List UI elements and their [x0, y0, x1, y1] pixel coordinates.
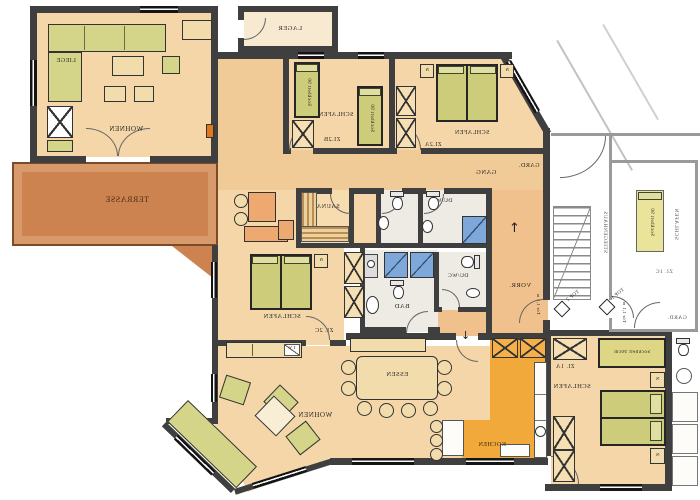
room-label-stiegenhaus: STIEGENHAUS — [599, 198, 607, 266]
wardrobe-icon — [553, 338, 587, 360]
sink — [676, 368, 692, 384]
wall — [211, 6, 218, 163]
door-note: Tür 1,1 m — [532, 284, 540, 324]
kitchen-sink — [535, 426, 546, 437]
bed-split — [602, 417, 664, 419]
sofa — [48, 24, 166, 52]
chair — [437, 381, 452, 396]
outer-wall — [150, 156, 218, 163]
bed-label: Sockbett 90 — [366, 93, 374, 143]
door-note: Tür 1,1 m — [618, 292, 626, 332]
wardrobe-icon — [553, 416, 575, 450]
chair — [379, 403, 394, 418]
cabinet — [182, 20, 212, 40]
counter-seam — [535, 394, 546, 395]
bed-label: Sockbett 90cm — [604, 350, 660, 355]
room-label-schlafen-1a: SCHLAFEN — [544, 384, 600, 391]
wardrobe-icon — [396, 86, 416, 116]
flow-arrow: ↓ — [461, 330, 470, 341]
room-floor-hall-alcove — [218, 58, 284, 152]
wardrobe-icon — [292, 120, 314, 148]
bench — [47, 140, 73, 152]
room-label-gang: GANG — [466, 170, 506, 177]
wardrobe-icon — [396, 118, 416, 148]
outer-wall — [30, 156, 86, 163]
door-arc — [560, 136, 606, 178]
bar-stool — [430, 434, 443, 447]
wardrobe-icon — [553, 450, 575, 482]
radiator — [206, 124, 214, 138]
window — [298, 52, 324, 59]
room-label-schlafen-2a: SCHLAFEN — [444, 130, 500, 136]
bed-split — [466, 66, 468, 120]
counter — [672, 424, 698, 454]
wall — [434, 252, 439, 312]
room-label-zi1c: ZI. 1C — [646, 270, 682, 276]
toilet-bowl — [461, 256, 474, 268]
coffee-table — [112, 56, 144, 76]
chair — [401, 403, 416, 418]
room-label-essen: ESSEN — [374, 372, 420, 379]
sideboard — [350, 338, 426, 352]
label-gard: GARD. — [512, 163, 546, 169]
label-gard-neighbor: GARD. — [660, 316, 694, 322]
chair — [423, 401, 438, 416]
toilet-bowl — [428, 197, 439, 210]
pillow — [470, 66, 496, 74]
nightstand-label: N — [421, 68, 433, 73]
wall — [444, 188, 492, 194]
pillow — [650, 394, 662, 414]
counter — [672, 392, 698, 422]
window — [600, 484, 642, 491]
bar-stool — [430, 448, 443, 461]
wall — [434, 307, 442, 312]
wardrobe-icon — [344, 252, 364, 284]
window — [466, 458, 514, 465]
sink — [422, 220, 433, 233]
table — [248, 192, 276, 222]
chair — [341, 360, 356, 375]
chair — [234, 212, 248, 226]
window — [211, 262, 217, 298]
shower — [410, 252, 434, 278]
room-label-wohnen-nw: WOHNEN — [96, 126, 156, 133]
counter — [672, 456, 698, 486]
wardrobe-icon — [344, 286, 364, 318]
toilet-tank — [474, 255, 480, 269]
room-label-kochen: KOCHEN — [470, 442, 514, 448]
outer-wall — [665, 330, 672, 491]
window — [211, 374, 217, 402]
counter-seam — [535, 420, 546, 421]
wall — [486, 248, 492, 336]
sink — [378, 216, 389, 230]
pillow — [284, 256, 310, 264]
bar-counter — [442, 420, 464, 456]
stairs-diagonal — [553, 206, 591, 300]
room-label-lager: LAGER — [268, 26, 312, 33]
wardrobe-icon — [520, 338, 546, 358]
wall — [418, 188, 423, 248]
armchair — [104, 86, 126, 102]
room-label-schlafen-2b: SCHLAFEN — [308, 112, 364, 118]
label-tv: TV — [284, 346, 300, 351]
wall — [389, 58, 395, 150]
room-label-sauna: SAUNA — [306, 204, 350, 210]
chair — [234, 194, 248, 208]
armchair — [278, 220, 294, 240]
stove-icon — [47, 106, 73, 138]
washer-door — [367, 260, 375, 268]
sink — [366, 296, 379, 314]
wardrobe-icon — [492, 338, 518, 358]
room-label-zi2c: ZI. 2C — [306, 328, 342, 334]
outer-wall — [30, 6, 218, 13]
side-table — [162, 56, 180, 74]
tv-board-seam — [252, 344, 253, 356]
window — [358, 52, 384, 59]
label-liege: LIEGE — [46, 58, 86, 64]
pillow — [438, 66, 464, 74]
sofa-seam — [84, 26, 85, 50]
neighbor-outline — [602, 24, 659, 120]
wall — [283, 58, 289, 150]
shower — [462, 216, 487, 244]
pillow — [650, 421, 662, 441]
terrace — [12, 162, 218, 246]
room-label-wohnen-sw: WOHNEN — [286, 412, 344, 419]
nightstand-label: N — [651, 453, 664, 458]
neighbor-wall — [695, 160, 698, 332]
room-label-terrasse: TERRASSE — [82, 196, 172, 204]
window — [352, 458, 414, 465]
room-label-schlafen-1c: SCHLAFEN — [670, 196, 678, 252]
room-label-bad: BAD — [386, 304, 418, 311]
wall — [313, 148, 397, 154]
sink — [466, 288, 480, 298]
wall — [330, 340, 346, 346]
toilet-bowl — [392, 197, 403, 210]
room-label-zi2b: ZI.2B — [314, 137, 350, 143]
door-arc — [634, 302, 660, 328]
room-label-zi2a: ZI.2A — [416, 142, 450, 148]
pillow — [252, 256, 278, 264]
wall — [421, 148, 545, 154]
toilet-bowl — [678, 344, 689, 356]
wall — [238, 6, 338, 12]
bed-label: Sockbett 90 — [303, 67, 311, 117]
floor-plan: LIEGE WOHNEN LAGER TERRASSE Sockbett 90 … — [0, 0, 700, 500]
kitchen-counter — [534, 362, 547, 458]
nightstand-label: N — [501, 68, 513, 73]
window — [30, 60, 37, 106]
chair — [357, 401, 372, 416]
sofa-seam — [124, 26, 125, 50]
chair — [341, 381, 356, 396]
chair — [437, 360, 452, 375]
shower — [384, 252, 408, 278]
entry-arrow: ↑ — [509, 222, 520, 235]
bed-label: Sockbett 90 — [646, 197, 654, 247]
window — [140, 6, 178, 13]
nightstand-label: N — [315, 258, 327, 263]
room-floor-anteroom — [353, 190, 378, 247]
bed-split — [280, 256, 282, 308]
nightstand-label: N — [651, 377, 664, 382]
armchair — [134, 86, 154, 102]
neighbor-wall — [611, 160, 698, 163]
room-label-schlafen-2c: SCHLAFEN — [254, 314, 310, 321]
room-label-zi1a: ZI. 1A — [548, 364, 582, 370]
sauna-bench — [301, 226, 349, 242]
room-label-duwc3: DU/WC — [440, 274, 476, 280]
toilet-bowl — [393, 286, 404, 299]
bar-stool — [430, 420, 443, 433]
